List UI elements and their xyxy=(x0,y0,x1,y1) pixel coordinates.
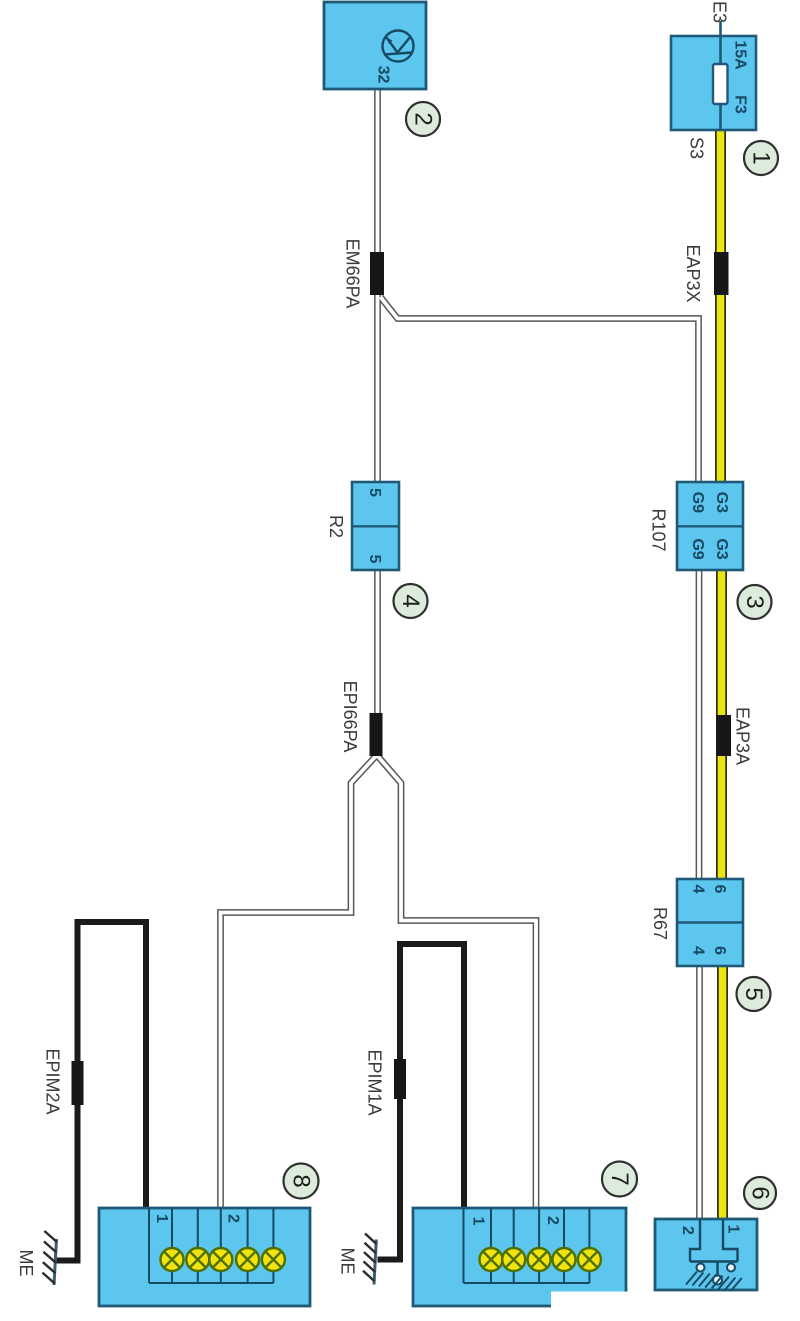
svg-text:5: 5 xyxy=(366,555,383,564)
svg-text:EAP3X: EAP3X xyxy=(683,244,703,302)
svg-text:EPI66PA: EPI66PA xyxy=(340,681,360,753)
svg-text:2: 2 xyxy=(225,1214,242,1223)
svg-text:6: 6 xyxy=(747,1186,774,1199)
svg-text:15A: 15A xyxy=(732,40,749,70)
svg-text:1: 1 xyxy=(725,1225,742,1234)
svg-text:EPIM1A: EPIM1A xyxy=(365,1049,385,1115)
svg-text:R67: R67 xyxy=(650,907,670,940)
svg-text:6: 6 xyxy=(711,885,728,894)
svg-text:4: 4 xyxy=(690,885,707,894)
svg-text:4: 4 xyxy=(397,594,424,607)
svg-text:G9: G9 xyxy=(689,538,706,559)
svg-text:EAP3A: EAP3A xyxy=(733,707,753,765)
svg-text:G3: G3 xyxy=(713,538,730,559)
svg-text:2: 2 xyxy=(410,112,437,125)
svg-text:32: 32 xyxy=(375,66,392,84)
svg-text:5: 5 xyxy=(366,488,383,497)
svg-text:R2: R2 xyxy=(326,515,346,538)
svg-text:F3: F3 xyxy=(732,95,749,114)
svg-text:E3: E3 xyxy=(710,1,730,23)
svg-text:ME: ME xyxy=(338,1248,358,1275)
svg-text:2: 2 xyxy=(679,1226,696,1235)
svg-text:2: 2 xyxy=(544,1216,561,1225)
svg-text:3: 3 xyxy=(741,595,768,608)
svg-text:R107: R107 xyxy=(649,508,669,551)
svg-text:1: 1 xyxy=(470,1217,487,1226)
svg-text:1: 1 xyxy=(748,151,775,164)
svg-text:ME: ME xyxy=(16,1250,36,1277)
svg-text:EM66PA: EM66PA xyxy=(343,239,363,309)
svg-text:4: 4 xyxy=(690,946,707,955)
svg-text:6: 6 xyxy=(711,946,728,955)
svg-text:G3: G3 xyxy=(713,492,730,513)
svg-text:EPIM2A: EPIM2A xyxy=(43,1048,63,1114)
svg-text:G9: G9 xyxy=(689,492,706,513)
svg-text:8: 8 xyxy=(288,1174,315,1187)
svg-text:1: 1 xyxy=(153,1214,170,1223)
svg-text:S3: S3 xyxy=(687,137,707,159)
svg-text:7: 7 xyxy=(606,1172,633,1185)
svg-text:5: 5 xyxy=(740,987,767,1000)
